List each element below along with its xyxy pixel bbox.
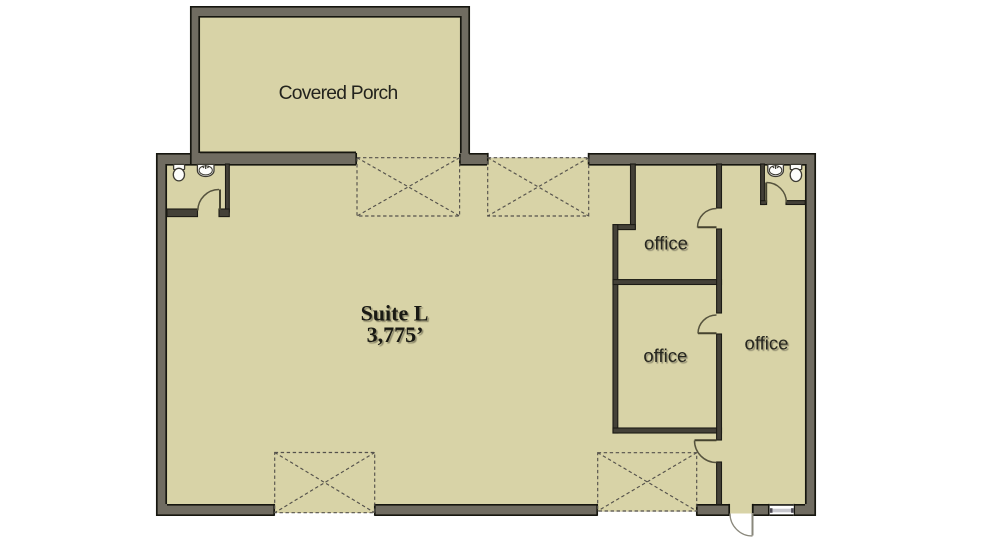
svg-text:office: office xyxy=(644,233,688,254)
svg-text:3,775’: 3,775’ xyxy=(367,322,424,347)
svg-text:Covered Porch: Covered Porch xyxy=(279,83,398,104)
svg-text:office: office xyxy=(643,345,687,366)
svg-text:office: office xyxy=(745,333,789,354)
